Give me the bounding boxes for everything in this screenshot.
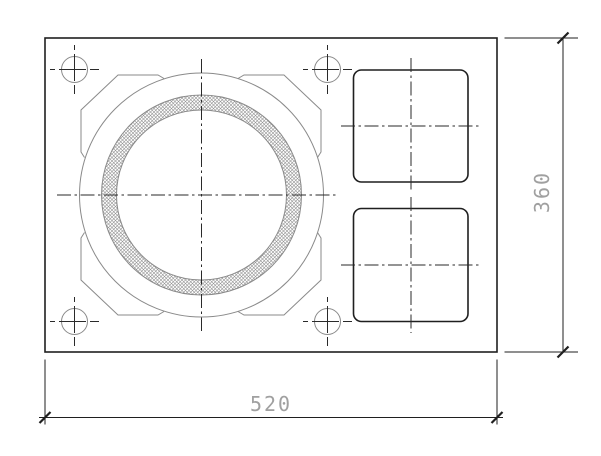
mounting-hole-bottom-right <box>303 297 352 346</box>
mounting-hole-bottom-left <box>50 297 99 346</box>
mounting-hole-top-left <box>50 45 99 94</box>
dimension-width: 520 <box>39 360 503 425</box>
pocket-lower <box>341 197 479 333</box>
pocket-upper <box>341 58 479 193</box>
dimension-width-label: 520 <box>250 392 292 416</box>
mounting-hole-top-right <box>303 45 352 94</box>
dimension-height-label: 360 <box>530 171 554 213</box>
engineering-drawing: 520 360 <box>0 0 601 456</box>
dimension-height: 360 <box>505 33 579 358</box>
drawing-canvas: 520 360 <box>0 0 601 456</box>
